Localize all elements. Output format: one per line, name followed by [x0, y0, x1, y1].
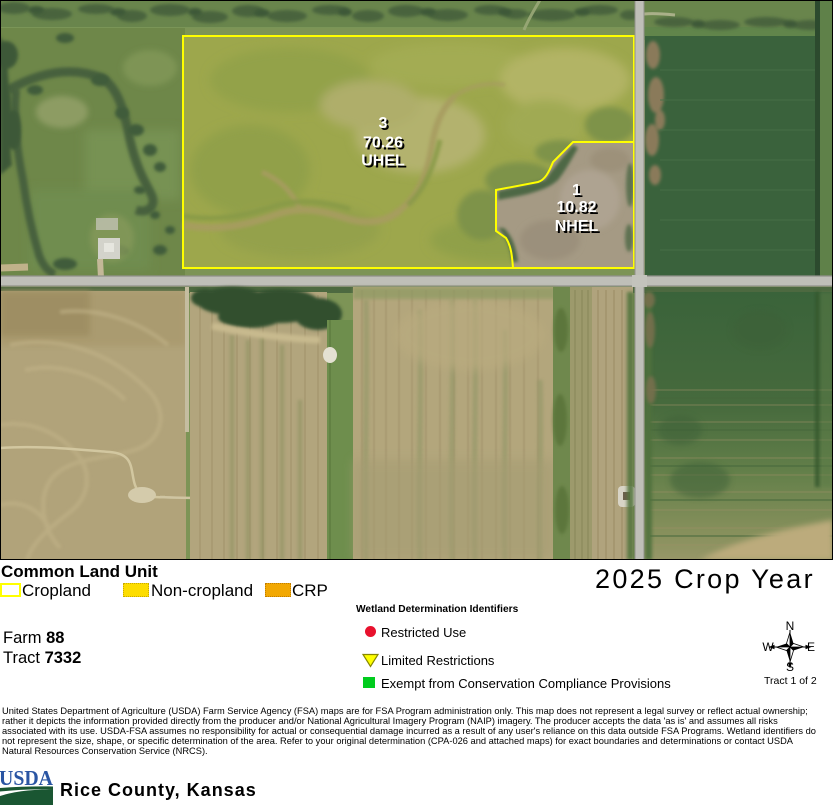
- svg-text:N: N: [786, 619, 795, 633]
- svg-text:S: S: [786, 660, 794, 674]
- svg-text:1: 1: [572, 182, 581, 199]
- svg-text:E: E: [807, 640, 815, 654]
- svg-text:NHEL: NHEL: [555, 218, 599, 235]
- svg-text:3: 3: [379, 115, 388, 132]
- svg-text:UHEL: UHEL: [361, 152, 405, 169]
- svg-text:W: W: [762, 640, 774, 654]
- svg-text:10.82: 10.82: [556, 199, 596, 216]
- svg-text:70.26: 70.26: [363, 135, 403, 152]
